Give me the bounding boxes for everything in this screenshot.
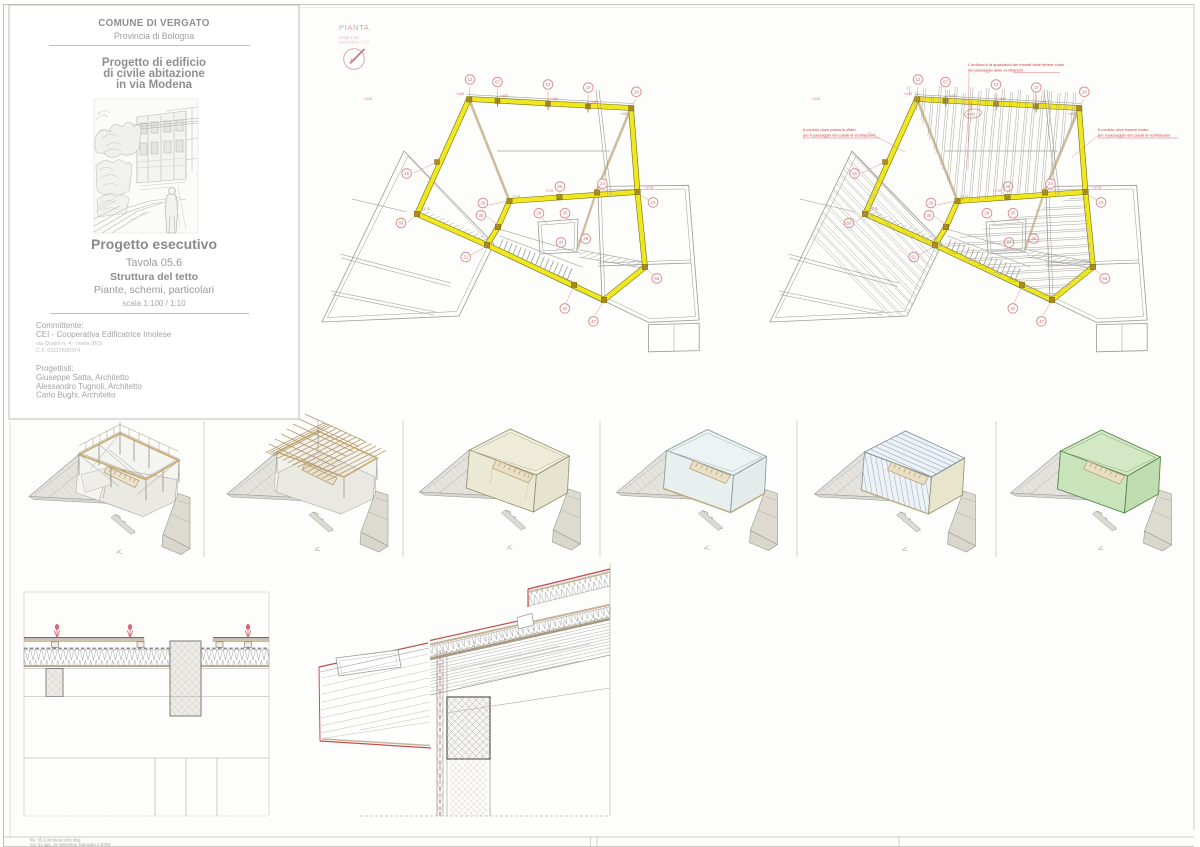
svg-text:scala 1:100 / 1:10: scala 1:100 / 1:10 [122,299,186,308]
svg-text:23: 23 [651,200,656,205]
svg-text:per il passaggio dei canali di: per il passaggio dei canali di ventilazi… [1098,133,1171,138]
svg-text:13: 13 [546,82,551,87]
svg-text:17: 17 [586,85,591,90]
svg-text:26: 26 [558,184,563,189]
svg-text:PIANTA: PIANTA [339,23,370,32]
svg-text:+4.60: +4.60 [620,112,628,116]
svg-text:42: 42 [562,306,567,311]
svg-text:CEI - Cooperativa Edificatrice: CEI - Cooperativa Edificatrice Imolese [36,330,172,339]
svg-text:rev. 01 agg. 15 settembre: rev. 01 agg. 15 settembre stampato il 30… [30,842,111,847]
svg-text:+2.70: +2.70 [512,195,520,199]
svg-text:34: 34 [537,211,542,216]
svg-text:+2.70: +2.70 [422,207,430,211]
svg-text:Provincia di Bologna: Provincia di Bologna [114,31,194,41]
svg-text:+4.60: +4.60 [590,100,598,104]
svg-text:Progetto esecutivo: Progetto esecutivo [91,236,217,252]
svg-text:+4.60: +4.60 [364,97,372,101]
svg-text:69: 69 [399,221,404,226]
svg-text:47: 47 [591,319,596,324]
svg-text:12: 12 [468,77,473,82]
svg-text:Struttura del tetto: Struttura del tetto [110,271,198,283]
svg-text:in via Modena: in via Modena [116,79,193,91]
svg-text:Il cordolo deve essere forato: Il cordolo deve essere forato [1098,127,1149,132]
svg-text:particolare 1:10: particolare 1:10 [339,40,370,45]
svg-text:Piante, schemi, particolari: Piante, schemi, particolari [94,284,214,296]
svg-text:Committente:: Committente: [36,321,84,330]
svg-text:+4.60: +4.60 [550,97,558,101]
svg-text:Tavola 05.6: Tavola 05.6 [126,257,182,269]
svg-text:30: 30 [479,213,484,218]
svg-text:Il cordolo dove passa lo sfiat: Il cordolo dove passa lo sfiato [803,127,856,132]
svg-text:+4.60: +4.60 [500,94,508,98]
svg-text:24: 24 [600,181,605,186]
svg-text:18: 18 [634,89,639,94]
svg-text:15: 15 [404,171,409,176]
svg-text:+4.60: +4.60 [966,113,975,117]
svg-text:67: 67 [495,80,500,85]
svg-text:+2.70: +2.70 [645,186,653,190]
svg-text:56: 56 [654,276,659,281]
svg-text:+4.60: +4.60 [456,92,464,96]
svg-text:L'orditura e la spaziatura dei: L'orditura e la spaziatura dei travetti … [968,62,1065,67]
svg-text:37: 37 [559,240,564,245]
svg-text:C.F. 01117600374: C.F. 01117600374 [36,348,80,354]
svg-text:+2.70: +2.70 [545,189,553,193]
svg-text:31: 31 [463,255,468,260]
svg-text:via Quaini n. 4 - Imola (BO): via Quaini n. 4 - Imola (BO) [36,341,103,347]
svg-text:36: 36 [583,236,588,241]
svg-text:Carlo Bughi, Architetto: Carlo Bughi, Architetto [36,391,116,400]
svg-text:28: 28 [481,201,486,206]
svg-text:35: 35 [563,211,568,216]
svg-text:Giuseppe Satta, Architetto: Giuseppe Satta, Architetto [36,373,129,382]
svg-text:del passaggio delle ventilazio: del passaggio delle ventilazioni [968,68,1023,73]
svg-text:Progettisti:: Progettisti: [36,364,74,373]
svg-text:COMUNE DI VERGATO: COMUNE DI VERGATO [98,18,210,29]
svg-text:per il passaggio dei canali di: per il passaggio dei canali di ventilazi… [803,133,876,138]
